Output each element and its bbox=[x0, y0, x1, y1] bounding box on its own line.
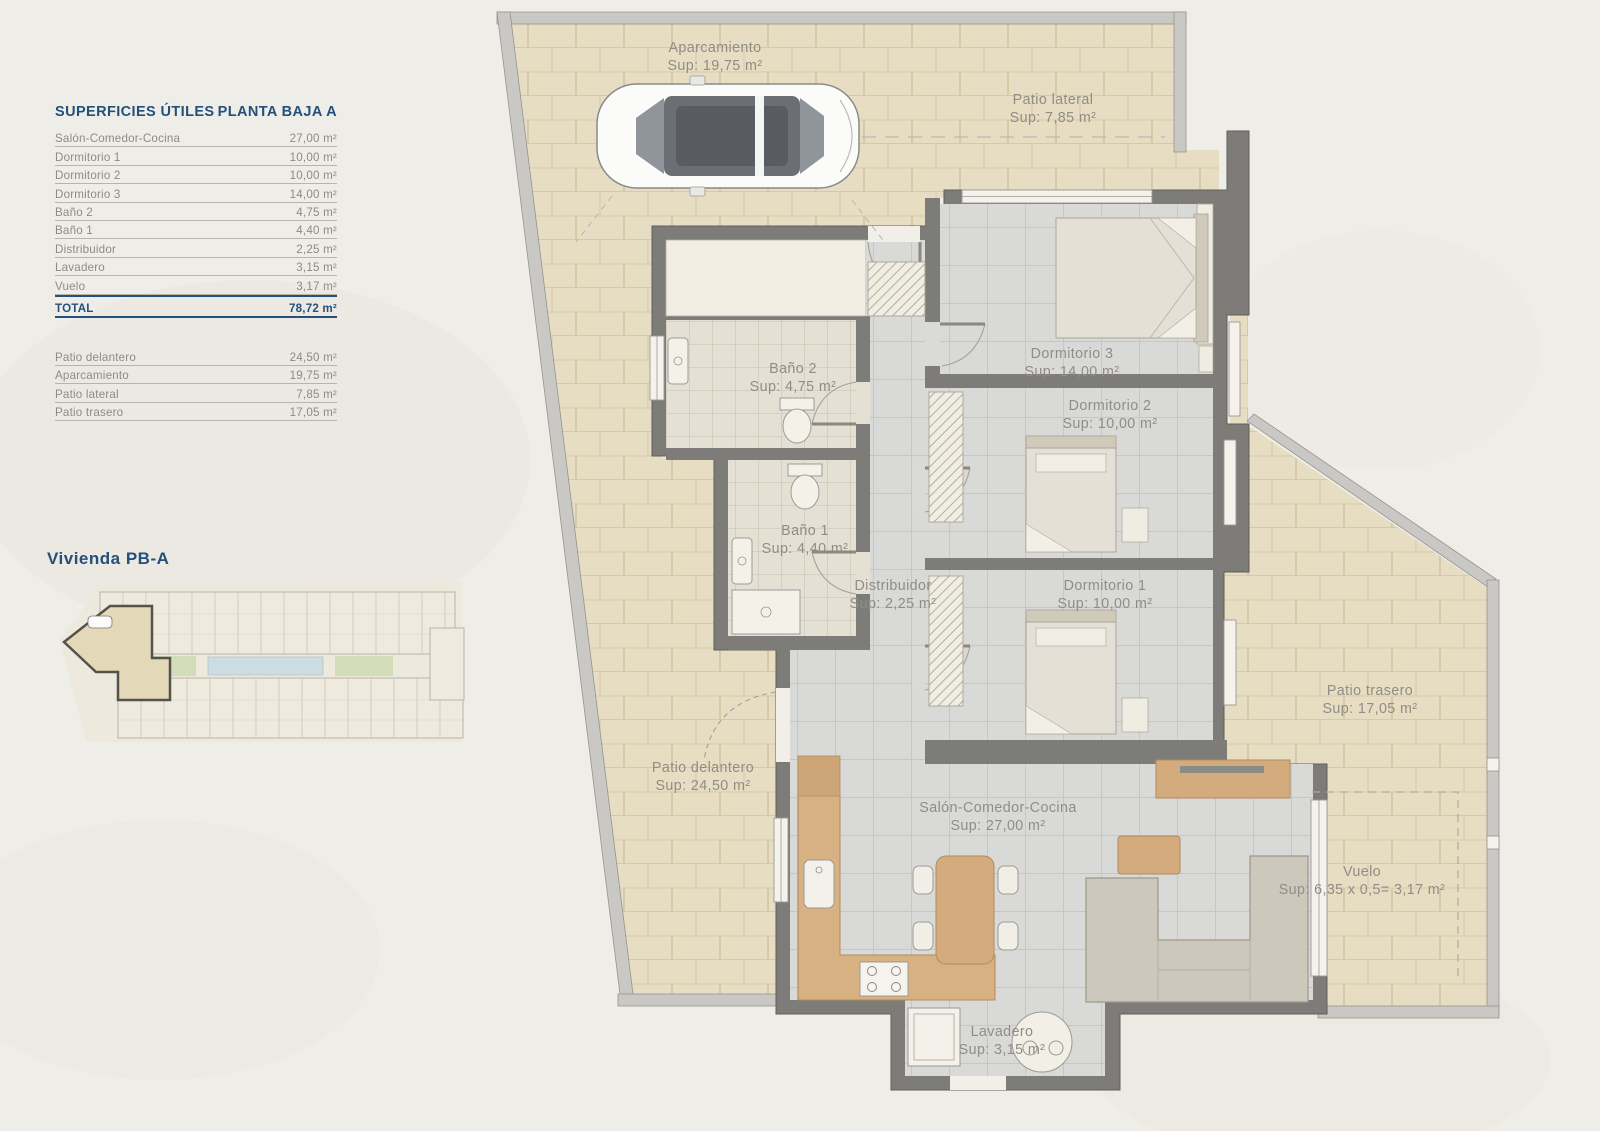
total-value: 78,72 m² bbox=[289, 302, 337, 315]
surfaces-table-header: SUPERFICIES ÚTILES PLANTA BAJA A bbox=[55, 104, 337, 120]
row-label: Baño 2 bbox=[55, 206, 93, 219]
room-area: Sup: 14,00 m² bbox=[1024, 364, 1119, 382]
room-name: Dormitorio 1 bbox=[1057, 578, 1152, 596]
room-area: Sup: 4,75 m² bbox=[750, 379, 837, 397]
row-value: 10,00 m² bbox=[290, 151, 337, 164]
table-total-row: TOTAL78,72 m² bbox=[55, 295, 337, 318]
table-row: Patio trasero17,05 m² bbox=[55, 403, 337, 421]
table-row: Dormitorio 210,00 m² bbox=[55, 166, 337, 184]
room-name: Aparcamiento bbox=[667, 40, 762, 58]
row-label: Patio trasero bbox=[55, 406, 123, 419]
room-label-bano-2: Baño 2Sup: 4,75 m² bbox=[750, 361, 837, 396]
row-value: 3,15 m² bbox=[296, 261, 337, 274]
row-value: 19,75 m² bbox=[290, 369, 337, 382]
table-row: Patio delantero24,50 m² bbox=[55, 348, 337, 366]
room-name: Dormitorio 3 bbox=[1024, 346, 1119, 364]
floorplan-page: SUPERFICIES ÚTILES PLANTA BAJA A Salón-C… bbox=[0, 0, 1600, 1131]
room-area: Sup: 3,15 m² bbox=[959, 1042, 1046, 1060]
room-name: Vuelo bbox=[1279, 864, 1446, 882]
row-value: 17,05 m² bbox=[290, 406, 337, 419]
row-label: Dormitorio 1 bbox=[55, 151, 121, 164]
row-label: Patio lateral bbox=[55, 388, 119, 401]
table-row: Vuelo3,17 m² bbox=[55, 276, 337, 294]
row-value: 14,00 m² bbox=[290, 188, 337, 201]
table-row: Aparcamiento19,75 m² bbox=[55, 366, 337, 384]
total-label: TOTAL bbox=[55, 302, 94, 315]
car bbox=[597, 76, 859, 196]
room-name: Salón-Comedor-Cocina bbox=[919, 800, 1076, 818]
surfaces-table: SUPERFICIES ÚTILES PLANTA BAJA A Salón-C… bbox=[55, 104, 337, 421]
row-label: Distribuidor bbox=[55, 243, 116, 256]
row-label: Vuelo bbox=[55, 280, 85, 293]
table-row: Salón-Comedor-Cocina27,00 m² bbox=[55, 129, 337, 147]
row-label: Dormitorio 3 bbox=[55, 188, 121, 201]
room-label-vuelo: VueloSup: 6,35 x 0,5= 3,17 m² bbox=[1279, 864, 1446, 899]
room-area: Sup: 10,00 m² bbox=[1057, 596, 1152, 614]
row-value: 10,00 m² bbox=[290, 169, 337, 182]
table-row: Distribuidor2,25 m² bbox=[55, 239, 337, 257]
surfaces-title: SUPERFICIES ÚTILES bbox=[55, 104, 214, 120]
room-area: Sup: 6,35 x 0,5= 3,17 m² bbox=[1279, 882, 1446, 900]
room-name: Patio delantero bbox=[652, 760, 754, 778]
row-label: Baño 1 bbox=[55, 224, 93, 237]
room-name: Patio trasero bbox=[1322, 683, 1417, 701]
row-value: 24,50 m² bbox=[290, 351, 337, 364]
table-row: Patio lateral7,85 m² bbox=[55, 384, 337, 402]
room-area: Sup: 24,50 m² bbox=[652, 778, 754, 796]
hall-wardrobe bbox=[868, 262, 925, 316]
table-row: Lavadero3,15 m² bbox=[55, 258, 337, 276]
room-label-patio-lateral: Patio lateralSup: 7,85 m² bbox=[1010, 92, 1097, 127]
row-label: Salón-Comedor-Cocina bbox=[55, 132, 180, 145]
room-name: Patio lateral bbox=[1010, 92, 1097, 110]
room-area: Sup: 2,25 m² bbox=[850, 596, 937, 614]
room-name: Baño 2 bbox=[750, 361, 837, 379]
room-area: Sup: 10,00 m² bbox=[1062, 416, 1157, 434]
room-label-lavadero: LavaderoSup: 3,15 m² bbox=[959, 1024, 1046, 1059]
row-value: 27,00 m² bbox=[290, 132, 337, 145]
row-label: Dormitorio 2 bbox=[55, 169, 121, 182]
row-label: Patio delantero bbox=[55, 351, 136, 364]
table-row: Dormitorio 110,00 m² bbox=[55, 147, 337, 165]
room-label-patio-trasero: Patio traseroSup: 17,05 m² bbox=[1322, 683, 1417, 718]
row-value: 4,75 m² bbox=[296, 206, 337, 219]
site-plan-thumbnail bbox=[60, 582, 464, 742]
room-label-aparcamiento: AparcamientoSup: 19,75 m² bbox=[667, 40, 762, 75]
room-area: Sup: 17,05 m² bbox=[1322, 701, 1417, 719]
room-name: Dormitorio 2 bbox=[1062, 398, 1157, 416]
room-name: Lavadero bbox=[959, 1024, 1046, 1042]
row-label: Aparcamiento bbox=[55, 369, 129, 382]
row-value: 4,40 m² bbox=[296, 224, 337, 237]
room-area: Sup: 27,00 m² bbox=[919, 818, 1076, 836]
keyplan-title: Vivienda PB-A bbox=[47, 549, 169, 569]
plan-name: PLANTA BAJA A bbox=[218, 104, 337, 120]
table-row: Baño 14,40 m² bbox=[55, 221, 337, 239]
room-area: Sup: 19,75 m² bbox=[667, 58, 762, 76]
room-label-patio-delantero: Patio delanteroSup: 24,50 m² bbox=[652, 760, 754, 795]
room-label-dormitorio-2: Dormitorio 2Sup: 10,00 m² bbox=[1062, 398, 1157, 433]
storage-floor bbox=[666, 240, 866, 316]
room-name: Distribuidor bbox=[850, 578, 937, 596]
room-name: Baño 1 bbox=[762, 523, 849, 541]
table-row: Baño 24,75 m² bbox=[55, 203, 337, 221]
room-label-dormitorio-1: Dormitorio 1Sup: 10,00 m² bbox=[1057, 578, 1152, 613]
row-label: Lavadero bbox=[55, 261, 105, 274]
room-label-distribuidor: DistribuidorSup: 2,25 m² bbox=[850, 578, 937, 613]
row-value: 2,25 m² bbox=[296, 243, 337, 256]
room-label-bano-1: Baño 1Sup: 4,40 m² bbox=[762, 523, 849, 558]
room-area: Sup: 7,85 m² bbox=[1010, 110, 1097, 128]
room-label-dormitorio-3: Dormitorio 3Sup: 14,00 m² bbox=[1024, 346, 1119, 381]
room-area: Sup: 4,40 m² bbox=[762, 541, 849, 559]
table-row: Dormitorio 314,00 m² bbox=[55, 184, 337, 202]
outdoor-surfaces: Patio delantero24,50 m² Aparcamiento19,7… bbox=[55, 348, 337, 422]
room-label-salon: Salón-Comedor-CocinaSup: 27,00 m² bbox=[919, 800, 1076, 835]
row-value: 3,17 m² bbox=[296, 280, 337, 293]
row-value: 7,85 m² bbox=[296, 388, 337, 401]
